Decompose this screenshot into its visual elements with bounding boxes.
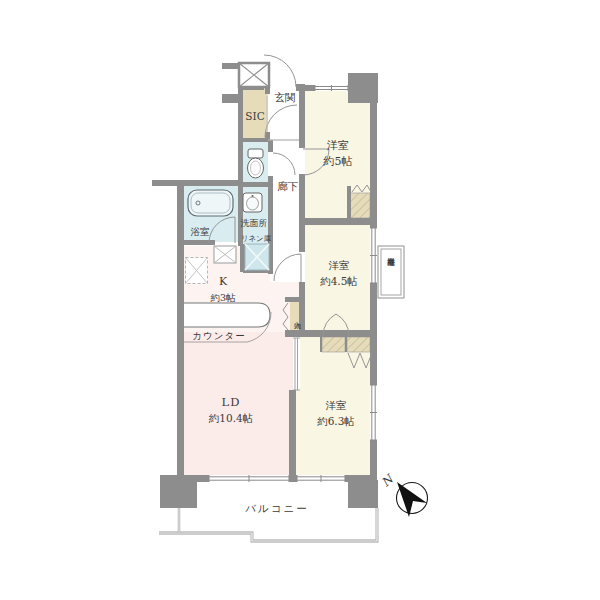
label-balcony: バルコニー [244, 502, 308, 514]
label-room45-name: 洋室 [329, 259, 350, 271]
label-room5-name: 洋室 [326, 139, 349, 152]
window-room5-top [315, 85, 348, 91]
label-kitchen-name: K [219, 275, 228, 288]
pipe-space-box [239, 63, 269, 87]
linen-closet-box [245, 244, 269, 270]
label-counter: カウンター [192, 330, 245, 341]
window-room63-bottom [297, 475, 345, 482]
washing-machine-box [214, 246, 236, 263]
window-ld-bottom [209, 475, 289, 482]
toilet-icon [248, 149, 264, 178]
floor-plan: N 玄関 SIC 洋室 約5帖 廊下 浴室 洗面所 リネン庫 K 約3帖 カウン… [0, 0, 600, 600]
floor-plan-svg: N 玄関 SIC 洋室 約5帖 廊下 浴室 洗面所 リネン庫 K 約3帖 カウン… [0, 0, 600, 600]
label-room63-size: 約6.3帖 [317, 415, 355, 427]
label-kitchen-size: 約3帖 [210, 292, 236, 303]
pillar-bottom-right [348, 480, 378, 508]
label-sic: SIC [245, 110, 264, 122]
window-room45-right [370, 228, 377, 283]
label-linen-closet: リネン庫 [241, 234, 272, 243]
pillar-bottom-left [160, 475, 197, 508]
room45-closet [322, 337, 345, 352]
room63-closet [347, 337, 370, 352]
sliding-door-ld-room63 [293, 337, 300, 390]
wall-stub-left [222, 94, 238, 103]
outdoor-unit-box [378, 246, 404, 298]
vanity-sink-icon [243, 193, 262, 212]
label-room45-size: 約4.5帖 [320, 275, 358, 287]
window-room63-right [370, 385, 377, 440]
label-room5-size: 約5帖 [323, 155, 353, 168]
label-bathroom: 浴室 [191, 226, 210, 237]
bathtub-icon [188, 190, 233, 216]
label-ld-size: 約10.4帖 [209, 412, 253, 424]
label-ld-name: LD [222, 395, 241, 409]
label-washroom: 洗面所 [240, 218, 268, 228]
label-hallway: 廊下 [278, 180, 299, 192]
label-entrance: 玄関 [275, 91, 296, 103]
refrigerator-box [186, 258, 208, 284]
room5-closet [350, 193, 370, 218]
wall-stub-top [222, 63, 238, 69]
label-room63-name: 洋室 [326, 399, 347, 411]
pillar-top-right [348, 73, 378, 103]
